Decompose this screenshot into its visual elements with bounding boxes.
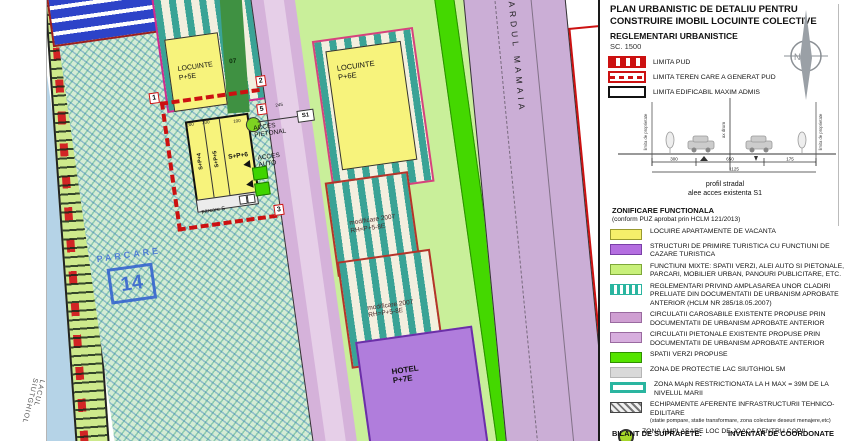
hotel-label: HOTEL P+7E [391,364,420,386]
legend-label: REGLEMENTARI PRIVIND AMPLASAREA UNOR CLA… [650,283,854,308]
direction-arrow-icon [754,156,758,161]
dim-left: 300 [670,157,678,162]
legend-item-mapn: ZONA MApN RESTRICTIONATA LA H MAX = 39M … [610,381,854,398]
tree-icon [666,132,674,154]
legend-item-mixte: FUNCTIUNI MIXTE: SPATII VERZI, ALEI AUTO… [610,263,854,280]
dim-total: 1125 [729,167,739,172]
dim-center: 650 [726,157,734,162]
parcel-p6e: LOCUINTE P+6E [312,27,435,196]
stair-box [247,194,256,204]
swatch-green [610,352,642,363]
swatch-purple [610,244,642,255]
limit-item: LIMITA TEREN CARE A GENERAT PUD [608,71,850,83]
zoning-legend: LOCUIRE APARTAMENTE DE VACANTA STRUCTURI… [610,228,854,441]
modificare-2-label: modificare 2007 RH=P+5-8E [367,298,415,319]
legend-item-carosabile: CIRCULATII CAROSABILE EXISTENTE PROPUSE … [610,311,854,328]
plan-subtitle: REGLEMENTARI URBANISTICE [610,31,738,41]
legend-label: ZONA MApN RESTRICTIONATA LA H MAX = 39M … [654,381,854,398]
tree-icon [798,132,806,154]
bilant-heading: BILANT DE SUPRAFETE: [612,429,702,438]
strip-07-label: 07 [229,58,237,65]
acces-auto-label: ACCES AUTO [257,152,281,170]
legend-label: STRUCTURI DE PRIMIRE TURISTICA CU FUNCTI… [650,243,854,260]
block-sp6-label: S+P+6 [228,151,249,161]
legend-item-turistic: STRUCTURI DE PRIMIRE TURISTICA CU FUNCTI… [610,243,854,260]
acces-arrow-icon [243,160,251,169]
map-rotated-group: 07 LOCUINTE P+5E PARCARE 14 S+P+4 S+P+5 [0,0,600,441]
limit-pud-label: LIMITA PUD [653,59,690,66]
legend-label: ZONA DE PROTECTIE LAC SIUTGHIOL 5M [650,366,785,374]
zoning-heading: ZONIFICARE FUNCTIONALA [612,206,714,215]
map-area: 07 LOCUINTE P+5E PARCARE 14 S+P+4 S+P+5 [0,0,600,441]
legend-item-spatii-verzi: SPATII VERZI PROPUSE [610,351,854,363]
plan-scale: SC. 1500 [610,42,641,51]
legend-label: CIRCULATII PIETONALE EXISTENTE PROPUSE P… [650,331,854,348]
legend-label: ECHIPAMENTE AFERENTE INFRASTRUCTURII TEH… [650,401,854,425]
legend-item-reglementari: REGLEMENTARI PRIVIND AMPLASAREA UNOR CLA… [610,283,854,308]
swatch-mauve [610,332,642,343]
left-limit-label: limita de proprietate [643,113,648,150]
profile-caption-line1: profil stradal [640,180,810,189]
car-icon [746,136,772,153]
building-p5e-label: LOCUINTE P+5E [177,62,214,83]
swatch-light-green [610,264,642,275]
block-sp4-label: S+P+4 [196,153,204,170]
legend-panel: PLAN URBANISTIC DE DETALIU PENTRU CONSTR… [598,0,855,441]
swatch-gray [610,367,642,378]
pud-point-5: 5 [256,103,267,115]
limit-item: LIMITA PUD [608,56,850,68]
legend-label: CIRCULATII CAROSABILE EXISTENTE PROPUSE … [650,311,854,328]
profile-caption: profil stradal alee acces existenta S1 [640,180,810,198]
limit-teren-label: LIMITA TEREN CARE A GENERAT PUD [653,74,776,81]
building-p6e: LOCUINTE P+6E [325,41,417,170]
block-sp5-label: S+P+5 [212,150,220,167]
swatch-pink [610,312,642,323]
dim-right: 175 [786,157,794,162]
sheet-margin [0,0,47,441]
legend-label: SPATII VERZI PROPUSE [650,351,728,359]
legend-label: LOCUIRE APARTAMENTE DE VACANTA [650,228,776,236]
acces-green-pad-2 [254,182,271,197]
pud-point-2: 2 [255,75,266,87]
pud-point-1: 1 [149,92,160,104]
profile-caption-line2: alee acces existenta S1 [640,189,810,198]
s1-label: S1 [302,112,310,119]
modificare-1-label: modificare 2007 RH=P+5-8E [349,213,397,234]
swatch-hatch [610,402,642,413]
pud-point-3: 3 [273,204,284,216]
red-generating-limit-h [568,12,600,30]
axis-label: ax drum [721,122,726,139]
right-limit-label: limita de proprietate [818,113,823,150]
legend-item-protectie-lac: ZONA DE PROTECTIE LAC SIUTGHIOL 5M [610,366,854,378]
s1-label-box: S1 [296,109,315,123]
street-profile-diagram: ax drum limita de proprietate limita de … [604,92,848,180]
swatch-teal-stripes [610,284,642,295]
zoning-subheading: (conform PUZ aprobat prin HCLM 121/2013) [612,216,740,223]
legend-item-echipamente: ECHIPAMENTE AFERENTE INFRASTRUCTURII TEH… [610,401,854,425]
building-p6e-label: LOCUINTE P+6E [336,60,376,82]
legend-item-pietonale: CIRCULATII PIETONALE EXISTENTE PROPUSE P… [610,331,854,348]
swatch-teal-border [610,382,646,393]
acces-arrow-icon [246,180,254,189]
legend-label-sub: (statie pompare, statie transformare, zo… [650,418,854,425]
car-icon [688,136,714,153]
direction-arrow-icon [700,156,708,161]
plan-urbanistic-sheet: 07 LOCUINTE P+5E PARCARE 14 S+P+4 S+P+5 [0,0,855,441]
legend-label: FUNCTIUNI MIXTE: SPATII VERZI, ALEI AUTO… [650,263,854,280]
legend-label-main: ECHIPAMENTE AFERENTE INFRASTRUCTURII TEH… [650,401,834,416]
inventar-heading: INVENTAR DE COORDONATE [728,429,834,438]
limit-teren-swatch [608,71,646,83]
parcare-number: 14 [119,271,144,297]
legend-item-locuire: LOCUIRE APARTAMENTE DE VACANTA [610,228,854,240]
limit-pud-swatch [608,56,646,68]
swatch-yellow [610,229,642,240]
boulevard-label: BULEVARDUL MAMAIA [502,0,527,114]
parcare-number-box: 14 [107,263,158,305]
